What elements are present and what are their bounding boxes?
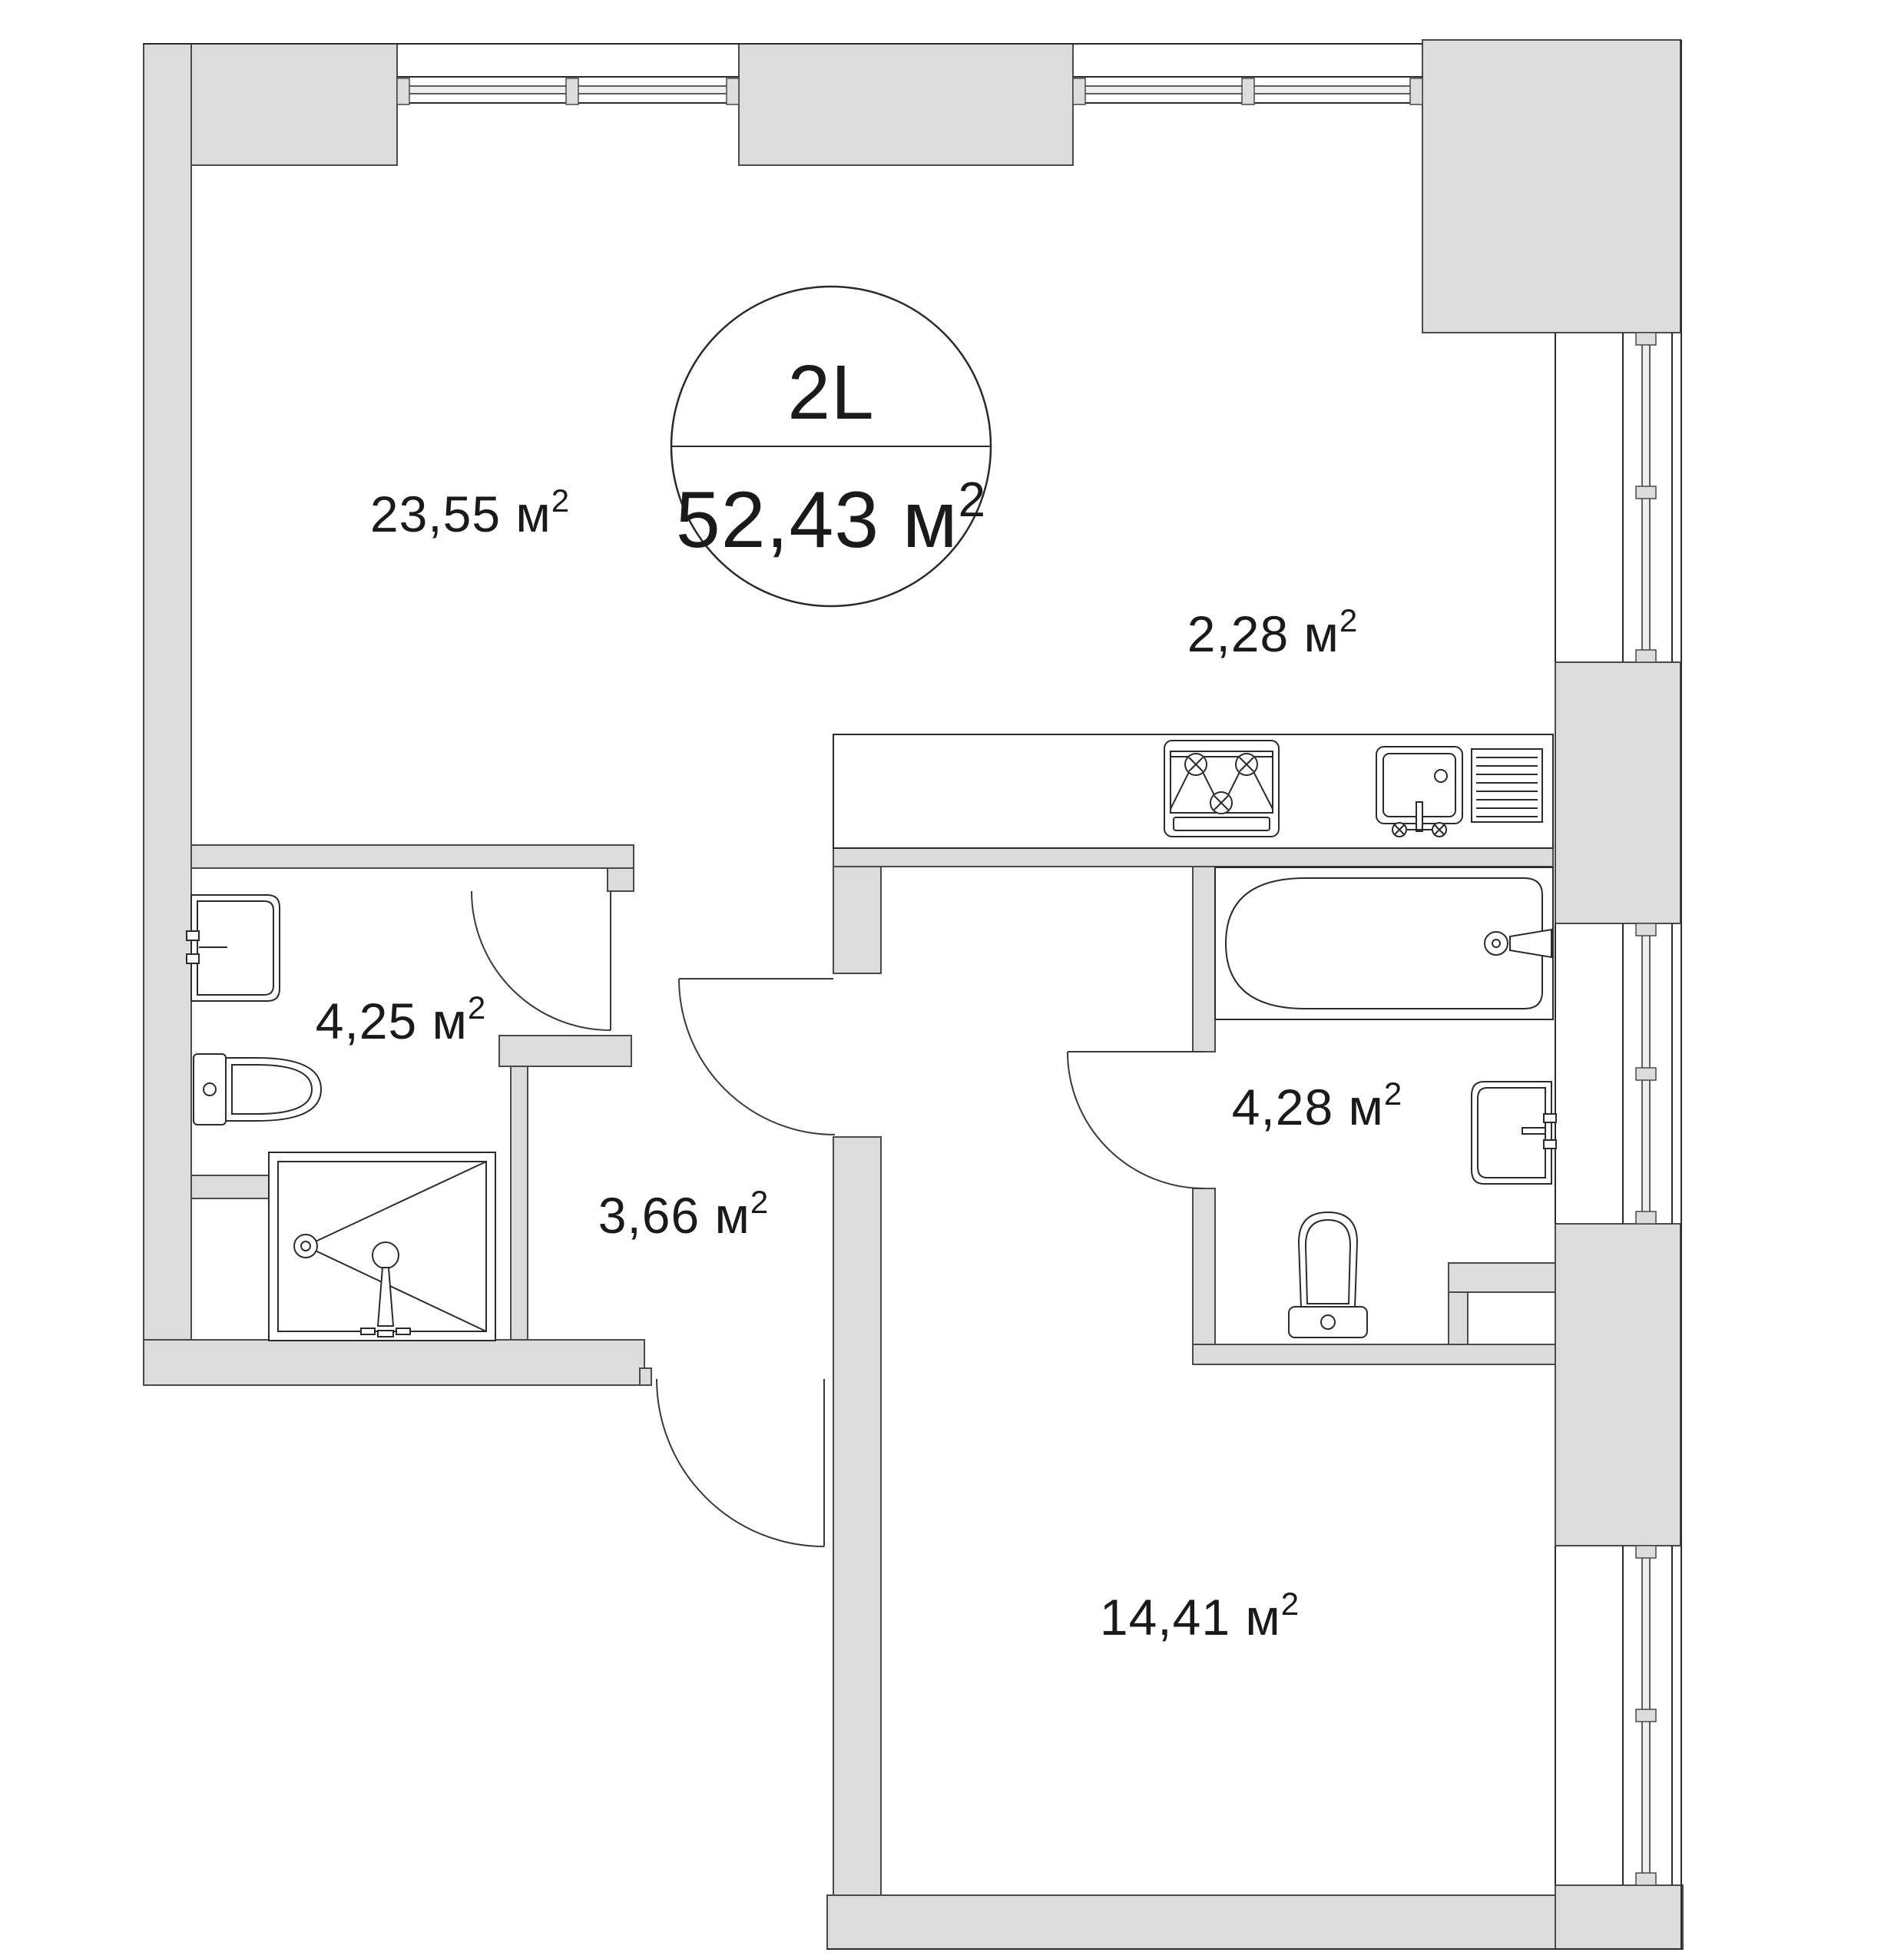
badge-total-area: 52,43 м2 [676, 472, 986, 565]
window-right-1 [1623, 333, 1672, 662]
label-bedroom: 14,41 м2 [1100, 1586, 1300, 1646]
gas-hob-icon [1164, 741, 1279, 837]
toilet-right-icon [1289, 1212, 1367, 1337]
faucet-handle [1544, 1114, 1556, 1122]
wall-right-block-2 [1555, 1224, 1680, 1546]
wall-under-counter [833, 848, 1553, 867]
door-hall-to-inner [679, 979, 835, 1135]
wall-bath-left-top [191, 845, 634, 868]
faucet-handle [1544, 1140, 1556, 1149]
tub-drain [1485, 932, 1508, 955]
window-top-2 [1073, 77, 1422, 104]
wall-bottom-left [144, 1340, 644, 1385]
window-right-3 [1623, 1546, 1672, 1885]
wall-top-middle-block [739, 44, 1073, 165]
label-kitchen-zone: 2,28 м2 [1187, 602, 1359, 662]
floor-plan-page: 2L 52,43 м2 23,55 м2 2,28 м2 4,25 м2 3,6… [0, 0, 1904, 1959]
wall-bath-right-left-upper [1193, 867, 1215, 1052]
wall-bath-left-stub [499, 1036, 631, 1066]
toilet-tank [194, 1054, 226, 1125]
label-bathroom-large: 4,28 м2 [1232, 1076, 1403, 1135]
badge-unit-id: 2L [787, 350, 874, 436]
duct-niche-top [1449, 1263, 1555, 1292]
shower-head [373, 1242, 399, 1268]
toilet-tank [1289, 1307, 1367, 1337]
toilet-left-icon [194, 1054, 321, 1125]
wall-bedroom-bottom [827, 1895, 1555, 1949]
floor-plan-drawing: 2L 52,43 м2 23,55 м2 2,28 м2 4,25 м2 3,6… [0, 0, 1904, 1959]
faucet-spout [1522, 1128, 1545, 1134]
faucet-spout [1416, 802, 1422, 831]
label-living-room: 23,55 м2 [370, 482, 570, 542]
wall-sink-right-icon [1472, 1082, 1556, 1184]
window-top-1 [397, 77, 739, 104]
door-entrance [657, 1379, 824, 1546]
shower-drain [294, 1235, 317, 1258]
door-bathroom-right [1068, 1052, 1204, 1188]
entrance-jamb-step [640, 1368, 651, 1385]
wall-shower-stub [191, 1175, 269, 1198]
wall-bath-left-side [511, 1066, 528, 1340]
duct-niche-left [1449, 1292, 1468, 1344]
label-hallway: 3,66 м2 [598, 1184, 770, 1244]
wall-spine-lower [833, 1137, 881, 1895]
window-right-2 [1623, 923, 1672, 1224]
faucet-handle [187, 954, 199, 963]
door-bathroom-left [472, 891, 611, 1030]
wall-right-bottom-corner [1555, 1885, 1683, 1949]
label-bathroom-small: 4,25 м2 [316, 989, 487, 1049]
wall-top-right-corner-block [1422, 40, 1680, 333]
wall-bath-right-left-lower [1193, 1188, 1215, 1344]
faucet-handle [187, 931, 199, 940]
bathtub-icon [1215, 867, 1553, 1019]
wall-bath-right-bottom [1193, 1344, 1555, 1364]
wall-bath-left-door-jamb [608, 868, 634, 891]
unit-badge: 2L 52,43 м2 [671, 287, 991, 606]
wall-sink-left-icon [187, 895, 280, 1001]
shower-icon [269, 1152, 495, 1341]
wall-right-block-1 [1555, 662, 1680, 923]
wall-left-outer [144, 44, 191, 1385]
